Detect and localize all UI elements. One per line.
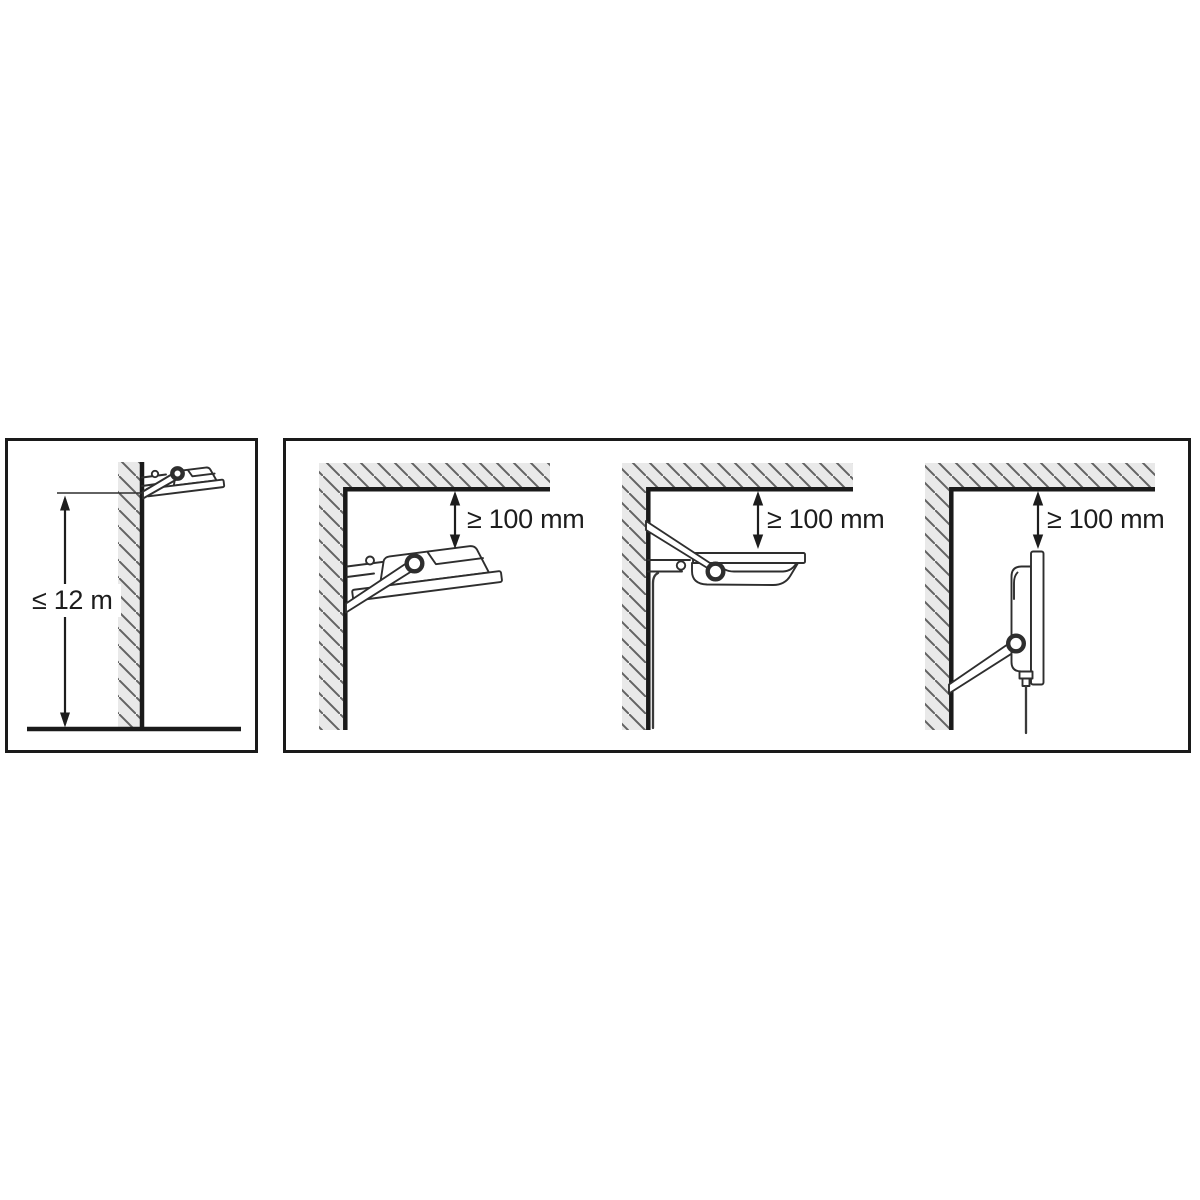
floodlight-vertical-icon xyxy=(949,552,1044,734)
clearance-label-2: ≥ 100 mm xyxy=(767,503,884,536)
right-panel-ceiling-clearance-figures xyxy=(285,440,1190,752)
clearance-label-3: ≥ 100 mm xyxy=(1047,503,1164,536)
clearance-label-1: ≥ 100 mm xyxy=(467,503,584,536)
max-height-label: ≤ 12 m xyxy=(24,584,121,617)
floodlight-facing-down-icon xyxy=(646,521,805,728)
floodlight-installation-diagram: ≤ 12 m ≥ 100 mm ≥ 100 mm ≥ 100 mm xyxy=(0,0,1200,1200)
floodlight-angled-up-icon xyxy=(346,543,502,613)
clearance-dimension-arrow xyxy=(450,491,460,549)
wall-cross-section xyxy=(118,462,140,729)
clearance-dimension-arrow xyxy=(1033,491,1043,549)
clearance-dimension-arrow xyxy=(753,491,763,549)
floodlight-side-view-icon xyxy=(142,466,224,499)
diagram-drawing xyxy=(0,0,1200,1200)
